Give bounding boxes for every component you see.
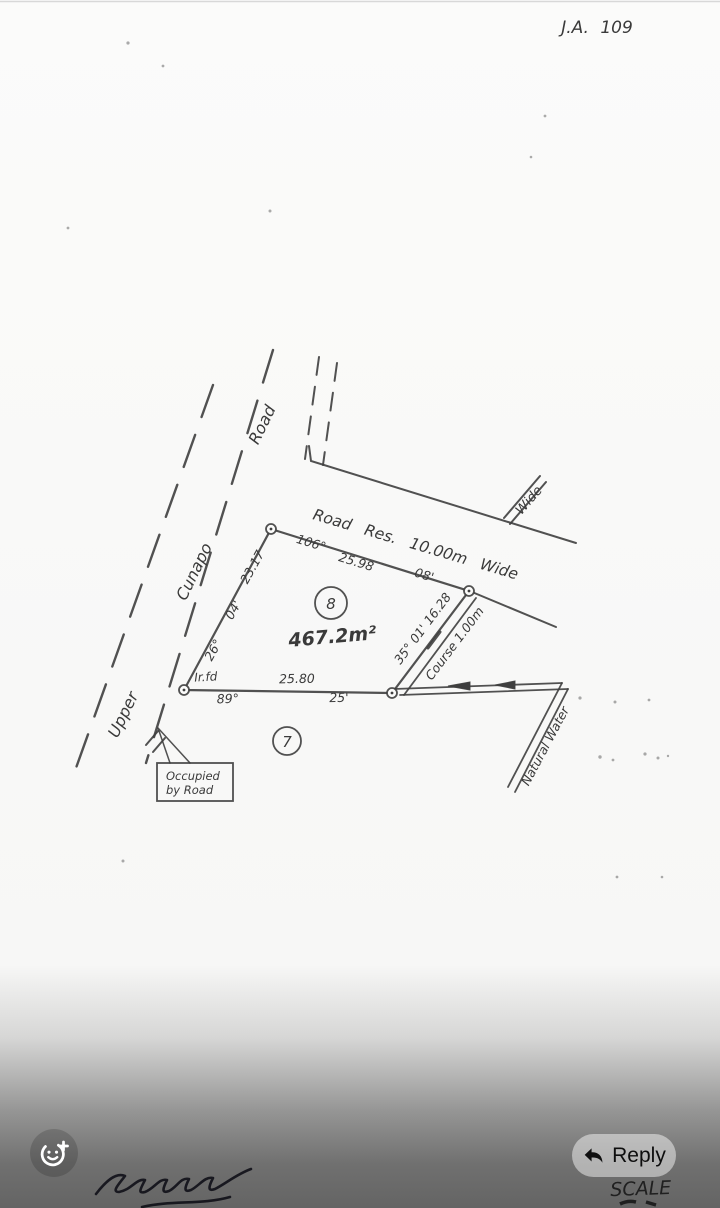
add-reaction-smiley-icon	[39, 1138, 69, 1168]
add-reaction-button[interactable]	[30, 1129, 78, 1177]
reply-button-label: Reply	[612, 1145, 666, 1166]
reply-button[interactable]: Reply	[572, 1134, 676, 1177]
signature	[0, 0, 720, 1208]
reply-arrow-icon	[582, 1144, 605, 1167]
